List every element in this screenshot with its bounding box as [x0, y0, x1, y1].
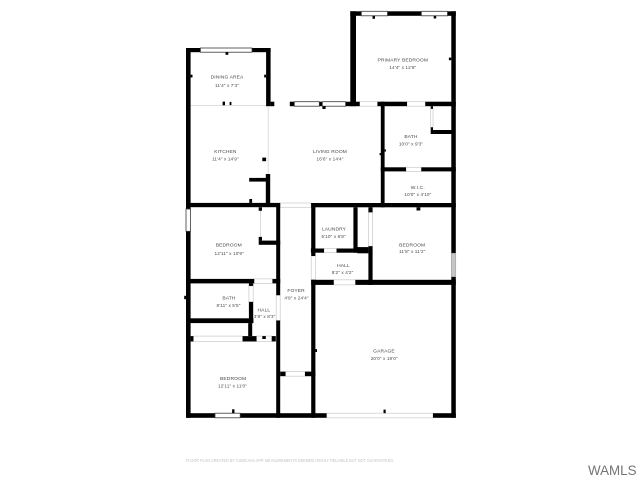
svg-text:10'0" x 4'10": 10'0" x 4'10"	[404, 192, 431, 197]
svg-text:8'2" x 4'2": 8'2" x 4'2"	[332, 270, 354, 275]
svg-text:11'8" x 11'2": 11'8" x 11'2"	[399, 249, 426, 254]
svg-text:11'4" x 14'9": 11'4" x 14'9"	[212, 157, 239, 162]
svg-text:HALL: HALL	[337, 263, 350, 269]
svg-text:KITCHEN: KITCHEN	[214, 149, 237, 155]
svg-text:W.I.C.: W.I.C.	[411, 185, 425, 191]
svg-text:WAMLS: WAMLS	[588, 462, 637, 478]
svg-text:4'9" x 24'4": 4'9" x 24'4"	[284, 295, 309, 300]
svg-text:12'11" x 11'0": 12'11" x 11'0"	[218, 384, 247, 389]
svg-text:BATH: BATH	[222, 295, 236, 301]
svg-text:BEDROOM: BEDROOM	[216, 242, 242, 248]
svg-text:3'8" x 8'3": 3'8" x 8'3"	[254, 314, 276, 319]
svg-text:BEDROOM: BEDROOM	[399, 242, 425, 248]
svg-text:GARAGE: GARAGE	[373, 348, 395, 354]
svg-text:FOYER: FOYER	[287, 288, 305, 294]
svg-text:BEDROOM: BEDROOM	[220, 376, 246, 382]
svg-text:LAUNDRY: LAUNDRY	[322, 226, 347, 232]
svg-text:5'10" x 6'8": 5'10" x 6'8"	[321, 234, 346, 239]
svg-text:12'11" x 10'9": 12'11" x 10'9"	[215, 251, 245, 256]
svg-text:20'0" x 19'0": 20'0" x 19'0"	[371, 356, 398, 361]
svg-text:11'4" x 7'3": 11'4" x 7'3"	[215, 83, 239, 88]
svg-text:BATH: BATH	[404, 134, 418, 140]
svg-text:8'11" x 5'5": 8'11" x 5'5"	[217, 303, 241, 308]
svg-text:16'6" x 14'4": 16'6" x 14'4"	[316, 157, 343, 162]
svg-text:10'0" x 9'3": 10'0" x 9'3"	[399, 141, 424, 146]
svg-text:PRIMARY BEDROOM: PRIMARY BEDROOM	[378, 58, 429, 64]
svg-text:HALL: HALL	[258, 308, 271, 314]
svg-text:14'4" x 12'8": 14'4" x 12'8"	[389, 65, 416, 70]
svg-text:DINING AREA: DINING AREA	[211, 74, 244, 80]
svg-text:LIVING ROOM: LIVING ROOM	[313, 149, 347, 155]
svg-text:FLOOR PLAN CREATED BY CUBICASA: FLOOR PLAN CREATED BY CUBICASA APP. MEAS…	[186, 458, 394, 463]
